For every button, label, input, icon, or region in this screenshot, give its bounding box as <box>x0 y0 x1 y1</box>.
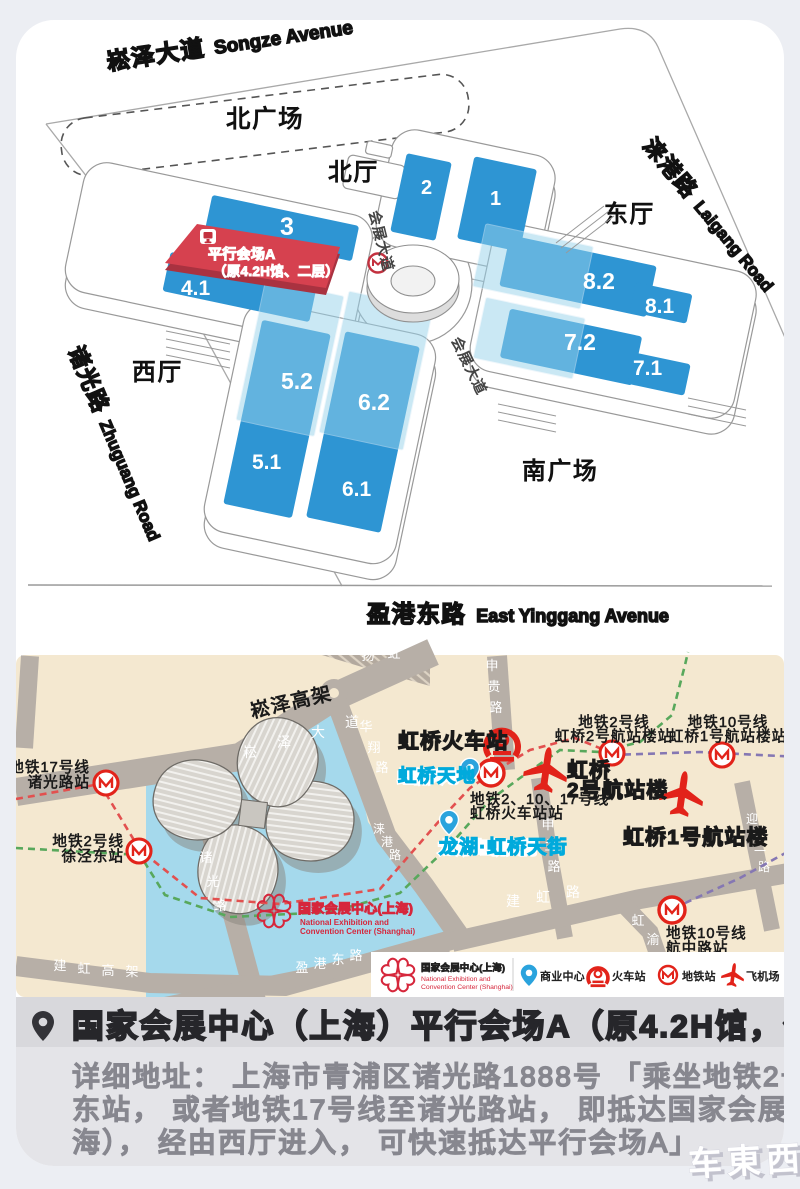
svg-text:北厅: 北厅 <box>328 159 379 186</box>
svg-text:建: 建 <box>506 893 520 909</box>
svg-text:扬: 扬 <box>361 648 374 663</box>
svg-text:高: 高 <box>101 963 114 978</box>
svg-text:详细地址： 上海市青浦区诸光路1888号 「乘坐地铁2号线: 详细地址： 上海市青浦区诸光路1888号 「乘坐地铁2号线至徐泾 <box>72 1061 800 1092</box>
svg-text:6.2: 6.2 <box>358 389 390 415</box>
svg-text:路: 路 <box>489 700 502 715</box>
svg-text:道: 道 <box>345 714 359 730</box>
svg-text:光: 光 <box>206 874 219 889</box>
svg-text:虹桥1号航站楼站: 虹桥1号航站楼站 <box>669 728 787 745</box>
svg-text:平行会场A: 平行会场A <box>208 246 276 262</box>
svg-text:东站， 或者地铁17号线至诸光路站， 即抵达国家会展中心（上: 东站， 或者地铁17号线至诸光路站， 即抵达国家会展中心（上 <box>72 1094 800 1125</box>
svg-text:虹桥火车站: 虹桥火车站 <box>398 729 509 753</box>
svg-text:1: 1 <box>490 188 501 210</box>
svg-text:路: 路 <box>375 760 388 775</box>
svg-text:National Exhibition and: National Exhibition and <box>300 918 389 927</box>
svg-text:路: 路 <box>547 859 560 874</box>
svg-text:Convention Center (Shanghai): Convention Center (Shanghai) <box>421 984 513 991</box>
svg-text:虹桥2号航站楼站: 虹桥2号航站楼站 <box>555 728 673 745</box>
svg-text:2: 2 <box>421 177 432 199</box>
svg-text:商业中心: 商业中心 <box>540 969 585 983</box>
svg-text:5.1: 5.1 <box>252 451 282 474</box>
svg-text:盈: 盈 <box>295 960 308 975</box>
svg-text:海）， 经由西厅进入， 可快速抵达平行会场A」: 海）， 经由西厅进入， 可快速抵达平行会场A」 <box>72 1127 699 1158</box>
svg-text:西厅: 西厅 <box>132 359 183 386</box>
svg-text:东厅: 东厅 <box>604 201 655 228</box>
svg-text:虹桥1号航站楼: 虹桥1号航站楼 <box>623 825 769 849</box>
svg-text:诸光路站: 诸光路站 <box>28 774 90 791</box>
svg-text:虹: 虹 <box>387 646 400 661</box>
svg-text:3: 3 <box>280 213 294 241</box>
svg-text:地铁17号线: 地铁17号线 <box>9 759 90 776</box>
svg-text:（原4.2H馆、二层）: （原4.2H馆、二层） <box>213 263 339 279</box>
svg-text:虹桥天地: 虹桥天地 <box>398 765 476 786</box>
svg-text:国家会展中心(上海): 国家会展中心(上海) <box>421 962 505 974</box>
svg-text:4.1: 4.1 <box>181 277 211 300</box>
svg-text:虹: 虹 <box>77 961 90 976</box>
svg-text:虹: 虹 <box>631 913 644 928</box>
svg-text:诸: 诸 <box>199 850 212 865</box>
svg-text:路: 路 <box>758 859 770 874</box>
svg-text:路: 路 <box>349 948 362 963</box>
svg-text:5.2: 5.2 <box>281 368 313 394</box>
svg-text:建: 建 <box>53 958 66 973</box>
svg-text:港: 港 <box>381 835 393 849</box>
svg-text:国家会展中心(上海): 国家会展中心(上海) <box>298 901 413 916</box>
svg-text:徐泾东站: 徐泾东站 <box>62 848 124 865</box>
svg-text:8.1: 8.1 <box>645 295 675 318</box>
svg-text:地铁2号线: 地铁2号线 <box>52 833 124 850</box>
svg-text:国家会展中心（上海）平行会场A（原4.2H馆，位于二层）: 国家会展中心（上海）平行会场A（原4.2H馆，位于二层） <box>72 1008 800 1044</box>
svg-text:6.1: 6.1 <box>342 478 372 501</box>
svg-text:地铁10号线: 地铁10号线 <box>666 925 747 942</box>
svg-text:火车站: 火车站 <box>612 969 646 983</box>
svg-text:7.2: 7.2 <box>564 329 596 355</box>
svg-text:翔: 翔 <box>367 740 380 755</box>
svg-text:龙湖·虹桥天街: 龙湖·虹桥天街 <box>439 835 568 858</box>
svg-text:南广场: 南广场 <box>522 458 598 485</box>
svg-text:华: 华 <box>359 719 372 734</box>
svg-text:路: 路 <box>389 847 401 862</box>
svg-text:虹: 虹 <box>536 889 550 905</box>
svg-text:8.2: 8.2 <box>583 268 615 294</box>
svg-text:地铁站: 地铁站 <box>682 969 716 983</box>
svg-text:渝: 渝 <box>646 932 659 947</box>
svg-text:架: 架 <box>125 964 138 979</box>
svg-text:港: 港 <box>313 956 326 971</box>
svg-text:贵: 贵 <box>487 679 500 694</box>
svg-text:车東西: 车東西 <box>687 1140 800 1184</box>
svg-text:崧: 崧 <box>243 744 257 760</box>
svg-text:Convention Center (Shanghai): Convention Center (Shanghai) <box>300 927 415 936</box>
svg-text:迎: 迎 <box>746 812 758 826</box>
svg-text:大: 大 <box>311 724 325 740</box>
svg-text:涞: 涞 <box>373 822 385 836</box>
svg-text:National Exhibition and: National Exhibition and <box>421 976 491 983</box>
svg-text:路: 路 <box>566 884 580 900</box>
svg-text:泽: 泽 <box>277 734 291 750</box>
svg-text:申: 申 <box>485 658 498 673</box>
svg-text:7.1: 7.1 <box>633 357 663 380</box>
svg-text:东: 东 <box>331 952 344 967</box>
svg-text:虹桥火车站站: 虹桥火车站站 <box>470 805 564 822</box>
svg-text:飞机场: 飞机场 <box>746 969 780 983</box>
svg-text:2号航站楼: 2号航站楼 <box>567 778 669 802</box>
svg-text:北广场: 北广场 <box>226 106 304 133</box>
